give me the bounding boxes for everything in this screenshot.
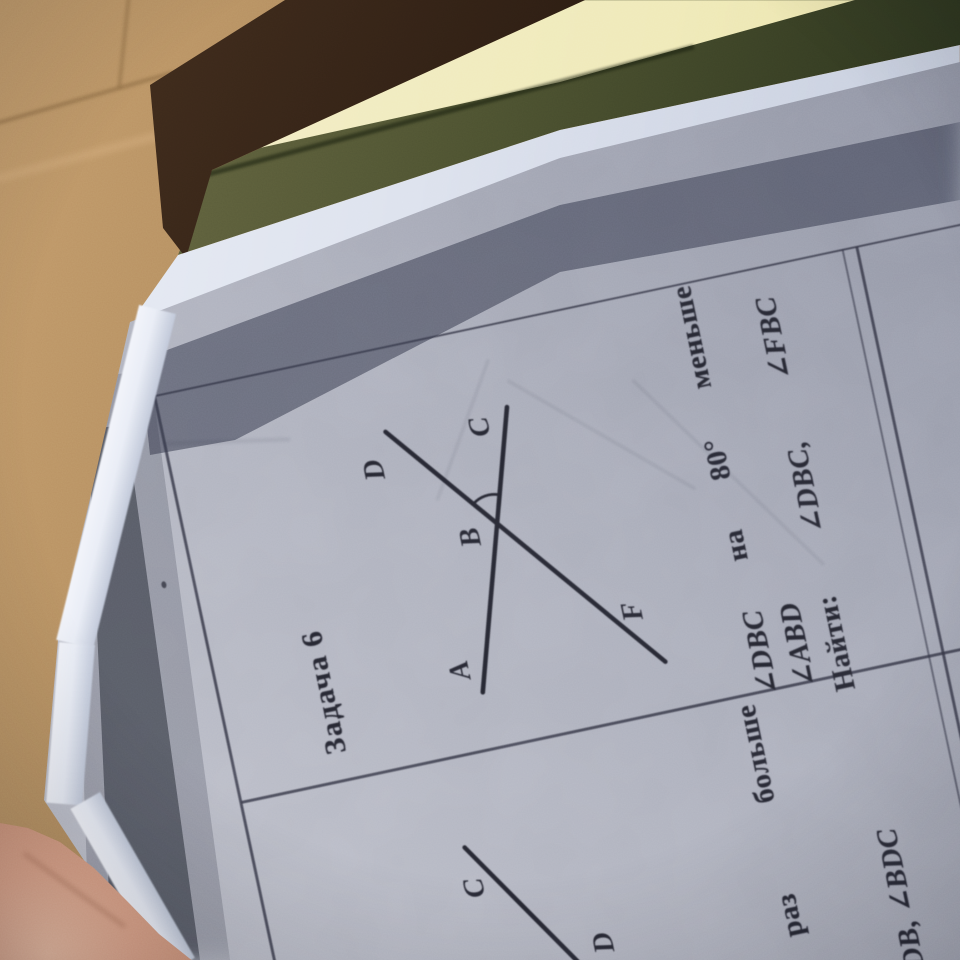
adjacent-label-c: C	[457, 875, 492, 901]
figure-line-df	[385, 385, 665, 709]
adjacent-label-d: D	[586, 929, 622, 957]
figure-label-b: B	[453, 525, 489, 552]
angle-arc-dbc	[472, 493, 500, 504]
figure-label-a: A	[442, 658, 478, 686]
photo-scene: Задача 6 A B C D F ∠DBC на 80° меньше ∠A…	[0, 0, 960, 960]
figure-label-d: D	[356, 456, 392, 484]
figure-label-f: F	[615, 599, 651, 626]
condition-word-na: на	[717, 526, 758, 565]
wood-seam	[117, 0, 131, 88]
figure-line-ac	[426, 407, 564, 692]
wood-seam	[0, 71, 174, 126]
